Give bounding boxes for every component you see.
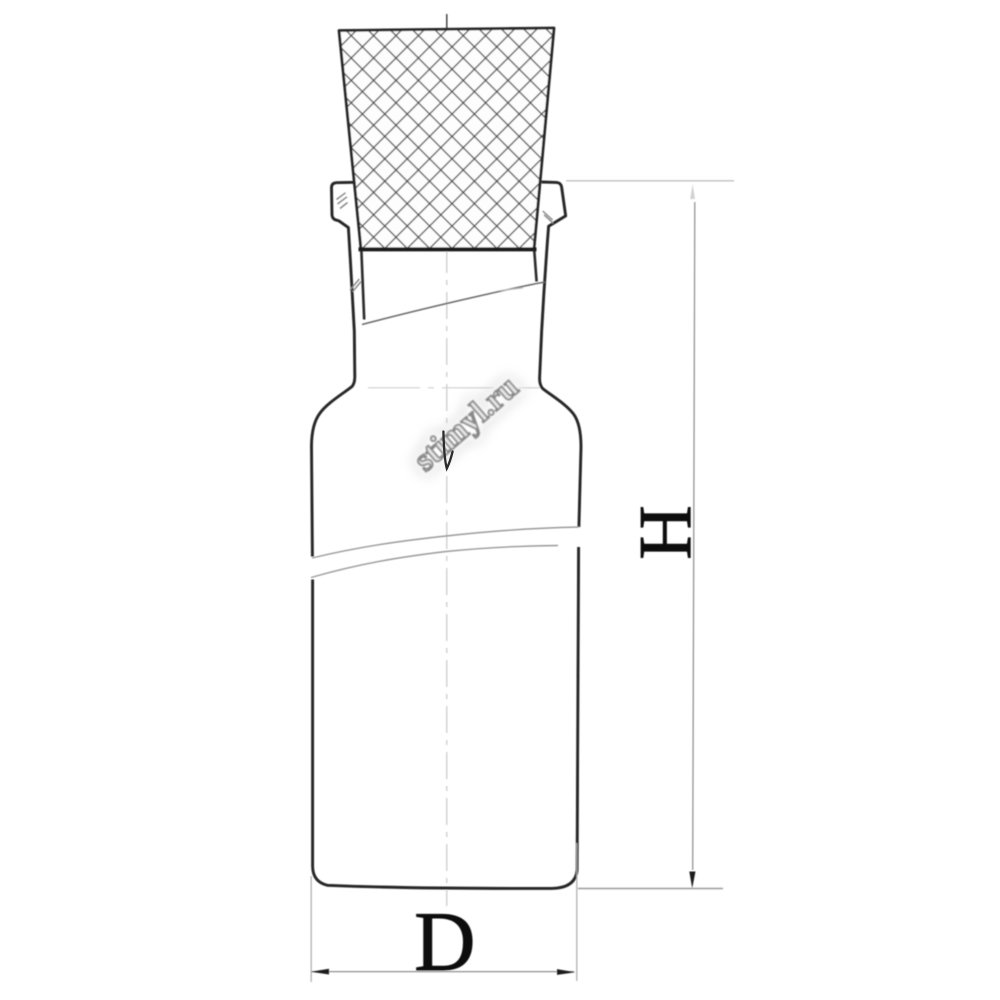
svg-text:D: D [414, 895, 475, 989]
svg-text:stimyl.ru: stimyl.ru [407, 369, 525, 478]
svg-text:H: H [624, 505, 707, 560]
